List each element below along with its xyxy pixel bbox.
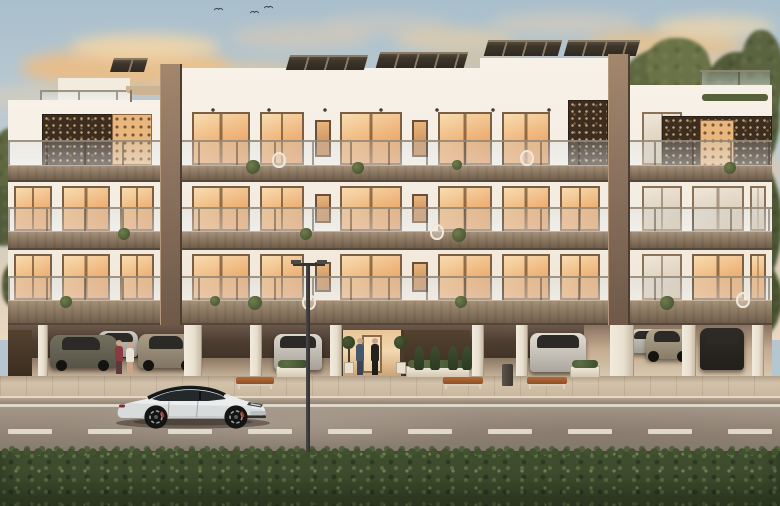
car-window <box>149 336 183 349</box>
bird-icon <box>264 5 273 9</box>
lane-dash <box>8 429 52 434</box>
garage-column <box>184 325 202 378</box>
roof-glass-railing <box>700 70 770 85</box>
bench <box>527 377 567 384</box>
concrete-pier <box>160 64 182 328</box>
bench-legs <box>445 384 481 389</box>
garage-column <box>752 325 764 378</box>
cloud <box>70 34 220 60</box>
car-wheel <box>98 360 109 371</box>
lane-dash <box>488 429 532 434</box>
balcony-slab <box>8 165 772 182</box>
topiary-ball <box>394 336 407 349</box>
person-body <box>356 344 364 361</box>
person-legs <box>116 361 122 374</box>
bird-icon <box>250 10 259 14</box>
solar-panel-array <box>376 52 469 68</box>
conifer-shrub <box>448 346 458 370</box>
trash-bin <box>502 364 513 386</box>
solar-panel-array <box>286 55 368 70</box>
person-legs <box>372 361 378 376</box>
lane-dash <box>568 429 612 434</box>
hedge <box>0 451 780 506</box>
conifer-shrub <box>414 346 424 370</box>
lamp-head-left <box>291 260 301 264</box>
garage-column <box>38 325 48 378</box>
conifer-shrub <box>430 346 440 370</box>
topiary-ball <box>342 336 355 349</box>
car-window <box>280 336 316 348</box>
car-window <box>705 330 738 344</box>
person-legs <box>357 361 363 376</box>
topiary-stem <box>348 349 350 362</box>
lane-dash <box>328 429 372 434</box>
garage-column <box>682 325 696 378</box>
architectural-rendering <box>0 0 780 506</box>
concrete-pier <box>608 54 630 328</box>
hanging-egg-chair <box>430 224 444 240</box>
topiary-pot <box>344 362 354 374</box>
garage-column <box>516 325 528 378</box>
ceiling-spotlights <box>185 108 605 112</box>
bird-icon <box>214 7 223 11</box>
roof-planter <box>702 94 768 101</box>
roof-glass-railing <box>40 90 128 100</box>
garage-column <box>472 325 484 378</box>
car-wheel <box>143 360 154 371</box>
balcony-slab <box>8 300 772 325</box>
person-body <box>371 344 379 361</box>
garage-column <box>610 325 634 378</box>
lane-dash <box>728 429 772 434</box>
lane-dash <box>408 429 452 434</box>
parked-car <box>700 328 744 370</box>
solar-panel-array <box>110 58 148 72</box>
lane-dash <box>648 429 692 434</box>
car-window <box>62 337 99 350</box>
solar-panel-array <box>484 40 563 56</box>
pergola-post <box>130 90 132 102</box>
car-wheel <box>56 360 67 371</box>
bench-legs <box>529 384 565 389</box>
garage-column <box>330 325 342 378</box>
stone-wall <box>8 330 32 378</box>
bench <box>443 377 483 384</box>
hanging-egg-chair <box>272 152 286 168</box>
planter-greens <box>278 360 308 368</box>
hanging-egg-chair <box>520 150 534 166</box>
white-sports-car <box>112 378 274 430</box>
hedge-fringe <box>0 445 780 455</box>
topiary-stem <box>400 349 402 362</box>
garage-column <box>250 325 262 378</box>
balcony-glass-railing <box>8 276 772 300</box>
topiary-pot <box>396 362 406 374</box>
person-body <box>126 348 134 362</box>
person-body <box>115 346 123 361</box>
balcony-glass-railing <box>8 140 772 165</box>
parked-car <box>50 335 118 368</box>
hanging-egg-chair <box>736 292 750 308</box>
car-window <box>537 335 580 348</box>
person-legs <box>127 362 133 374</box>
lamp-head-right <box>317 260 327 264</box>
car-window <box>654 331 679 342</box>
conifer-shrub <box>462 346 472 370</box>
lamp-pole <box>306 264 310 452</box>
planter-greens <box>572 360 598 368</box>
